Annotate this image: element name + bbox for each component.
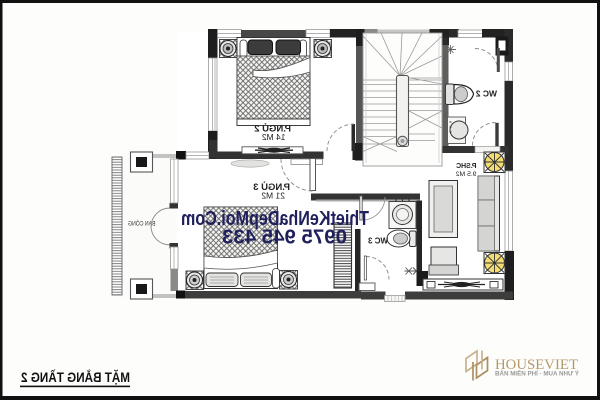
svg-text:14 M2: 14 M2 [262, 132, 286, 142]
svg-text:P.SHC: P.SHC [456, 163, 477, 170]
svg-text:9.5 M2: 9.5 M2 [456, 171, 477, 178]
svg-text:WC 3: WC 3 [367, 237, 388, 246]
svg-text:MẶT BẰNG TẦNG 2: MẶT BẰNG TẦNG 2 [21, 370, 130, 385]
svg-text:21 M2: 21 M2 [261, 190, 285, 200]
svg-text:0975 945 433: 0975 945 433 [222, 227, 347, 249]
svg-text:WC 2: WC 2 [475, 89, 497, 99]
svg-text:BẢN MIỀN PHÍ · MUA NHƯ Ý: BẢN MIỀN PHÍ · MUA NHƯ Ý [495, 370, 580, 378]
